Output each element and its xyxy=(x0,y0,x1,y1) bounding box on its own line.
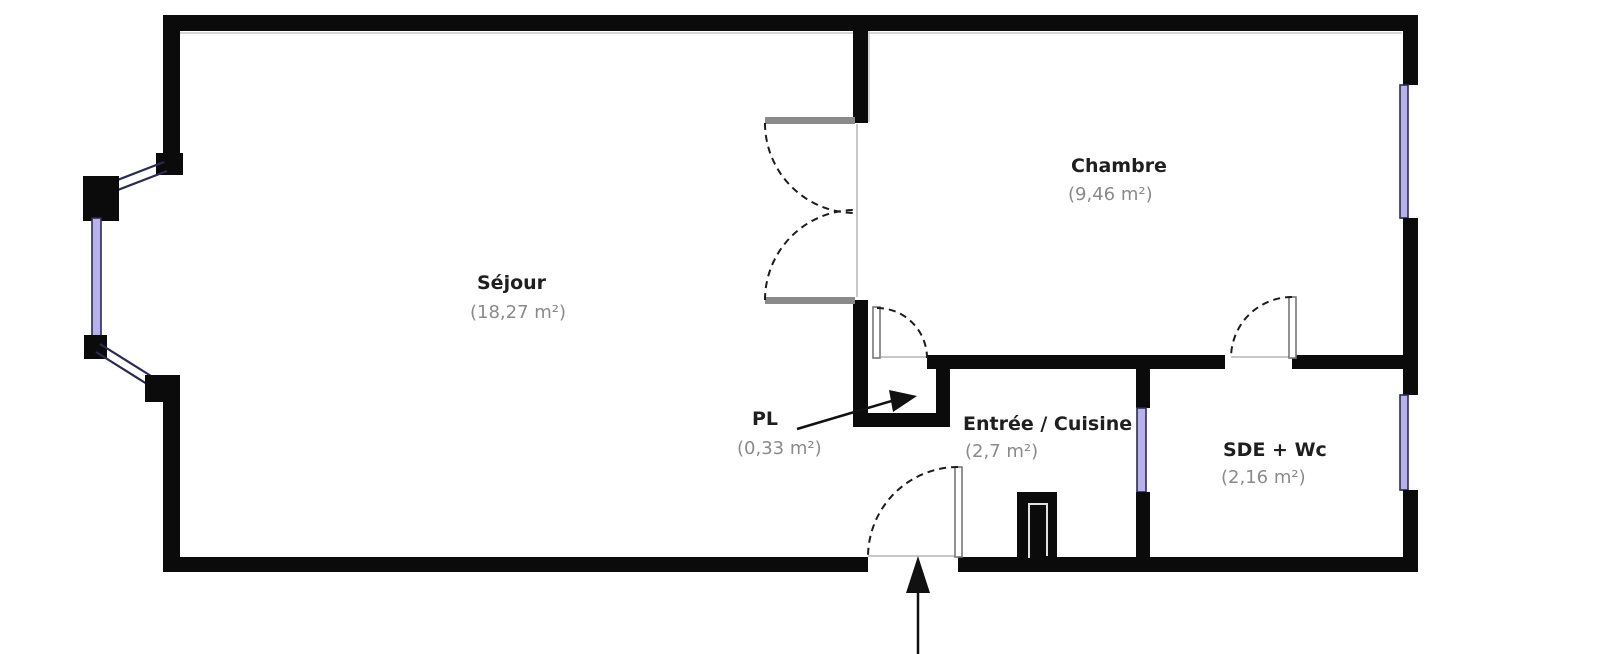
pl-closet-bottom-wall xyxy=(853,413,950,427)
room-area-sejour: (18,27 m²) xyxy=(470,302,566,323)
sde-west-wall-bottom xyxy=(1136,492,1150,557)
room-label-entree: Entrée / Cuisine xyxy=(963,413,1132,435)
double-door-upper-leaf xyxy=(765,117,855,124)
right-wall-mid xyxy=(1403,218,1418,395)
bay-stub-lower xyxy=(145,375,180,402)
bay-corner-block-top xyxy=(83,176,119,221)
pl-door-leaf xyxy=(873,307,880,358)
sde-window xyxy=(1400,395,1408,490)
floorplan-drawing: Séjour (18,27 m²) Chambre (9,46 m²) PL (… xyxy=(0,0,1600,654)
right-wall-bottom xyxy=(1403,490,1418,572)
bay-window xyxy=(92,218,101,337)
left-wall-upper xyxy=(163,15,180,173)
room-label-pl: PL xyxy=(752,408,778,430)
double-door-upper-swing-arc xyxy=(765,123,855,213)
room-area-entree: (2,7 m²) xyxy=(965,441,1038,462)
left-wall-lower xyxy=(163,400,180,572)
bottom-wall-right xyxy=(958,557,1418,572)
chambre-window xyxy=(1400,85,1408,218)
room-label-sejour: Séjour xyxy=(477,272,547,294)
pl-door-swing-arc xyxy=(877,308,927,358)
double-door-lower-leaf xyxy=(765,297,855,304)
chambre-south-wall-right xyxy=(1292,355,1403,369)
entrance-door-leaf xyxy=(955,467,962,557)
entrance-door-swing-arc xyxy=(868,467,958,557)
sde-door-swing-arc xyxy=(1231,297,1292,358)
sde-door-leaf xyxy=(1289,297,1296,358)
sde-interior-glazed-panel xyxy=(1137,408,1146,492)
top-wall xyxy=(163,15,1418,31)
room-area-pl: (0,33 m²) xyxy=(737,438,822,459)
double-door-lower-swing-arc xyxy=(765,210,855,300)
bottom-wall-left xyxy=(163,557,868,572)
technical-duct xyxy=(1017,492,1057,558)
pl-pointer-head xyxy=(889,390,917,412)
room-area-sde: (2,16 m²) xyxy=(1221,467,1306,488)
room-area-chambre: (9,46 m²) xyxy=(1068,184,1153,205)
divider-wall-upper xyxy=(853,15,868,123)
entrance-arrow-head xyxy=(906,556,930,593)
room-label-sde: SDE + Wc xyxy=(1223,439,1327,461)
chambre-south-wall-left xyxy=(927,355,1225,369)
sde-west-wall-top xyxy=(1136,355,1150,408)
floorplan-canvas: Séjour (18,27 m²) Chambre (9,46 m²) PL (… xyxy=(0,0,1600,654)
room-label-chambre: Chambre xyxy=(1071,155,1167,177)
right-wall-top xyxy=(1403,15,1418,85)
